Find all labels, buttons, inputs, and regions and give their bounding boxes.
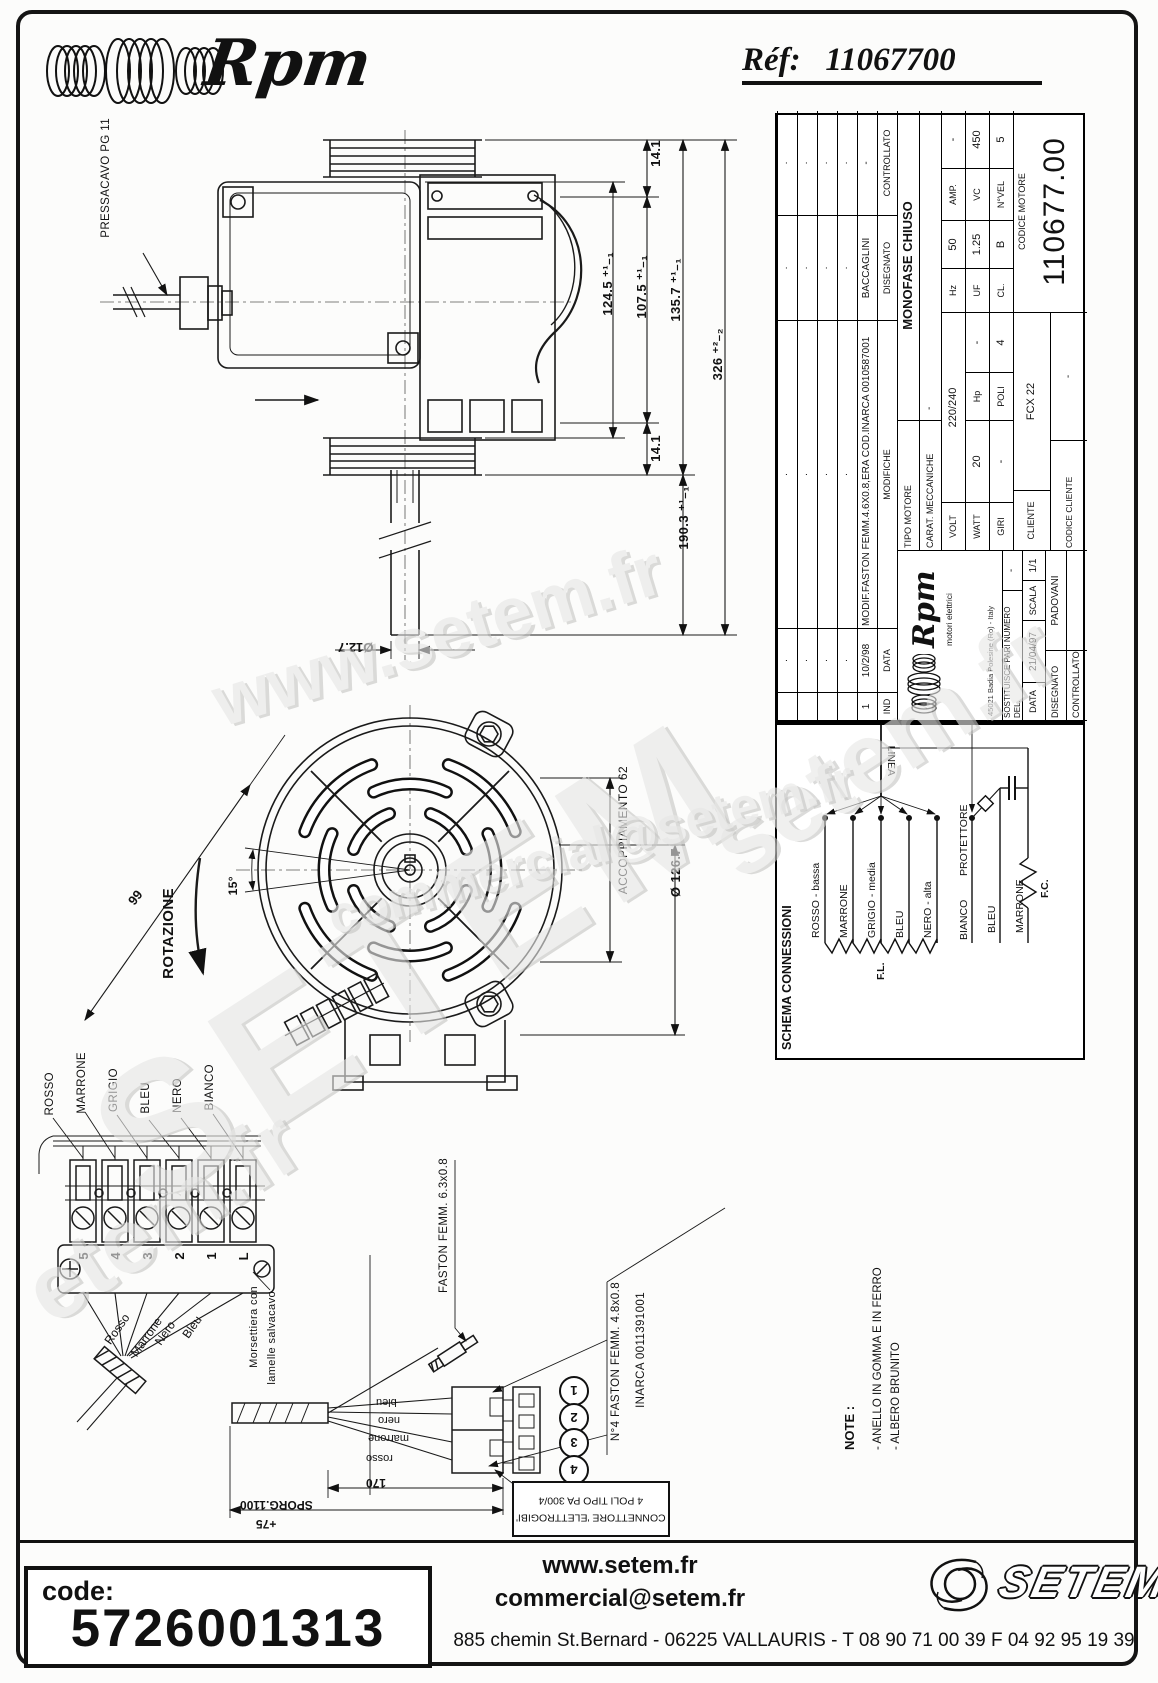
pin-1-text: 1 (570, 1384, 577, 1399)
poli-label: POLI (989, 373, 1013, 421)
tb-controllato-value (1066, 551, 1087, 651)
dim-sporgenza: SPORG.1100 (240, 1498, 313, 1512)
tb-controllato-label: CONTROLLATO (1066, 651, 1087, 721)
rev-cell: · (837, 629, 857, 693)
volt-value: 220/240 (941, 313, 965, 503)
faston4-code: INARCA 0011391001 (635, 1292, 647, 1408)
conn-wire-bleu: bleu (376, 1396, 397, 1408)
terminal-number-1: 1 (204, 1252, 219, 1260)
wire-label-rosso: ROSSO (44, 1072, 56, 1116)
codice-motore-cell: CODICE MOTORE 110677.00 (1013, 111, 1087, 313)
carat-value: - (919, 111, 941, 421)
motor-side-view-drawing (85, 105, 765, 680)
rev-ind-value: 1 (857, 693, 877, 721)
rev-cell: · (817, 216, 837, 321)
rev-modifiche-value: MODIF.FASTON FEMM.4.6X0.8,ERA COD.INARCA… (857, 321, 877, 629)
terminal-number-4: 4 (108, 1252, 123, 1260)
codice-motore-label: CODICE MOTORE (1017, 113, 1028, 310)
dim-326: 326 ⁺²₋₂ (710, 328, 725, 380)
rev-cell: · (817, 111, 837, 216)
tb-scala-label: SCALA (1022, 581, 1045, 621)
giri-label: GIRI (989, 503, 1013, 551)
watt-value: 20 (965, 421, 989, 503)
footer-email: commercial@setem.fr (460, 1585, 780, 1613)
conn-wire-nero: nero (378, 1414, 400, 1426)
terminal-number-5: 5 (76, 1252, 91, 1260)
terminal-connector-drawing (25, 1040, 785, 1540)
rev-cell: · (797, 111, 817, 216)
rev-col-ind: IND (877, 693, 897, 721)
poli-value: 4 (989, 313, 1013, 373)
tb-tagline: motori elettrici (944, 593, 955, 646)
footer-web: www.setem.fr (460, 1552, 780, 1580)
pin-4-text: 4 (570, 1463, 577, 1478)
company-logo-cell: Rpm motori elettrici 45021 Badia Polesin… (897, 551, 1002, 721)
wire-label-bianco: BIANCO (204, 1064, 216, 1111)
rev-cell: · (797, 321, 817, 629)
wire-label-grigio: GRIGIO (108, 1068, 120, 1112)
rev-cell: · (837, 216, 857, 321)
connettore-box-text: CONNETTORE 'ELETTROGIBI' 4 POLI TIPO PA … (516, 1492, 666, 1526)
dim-107-5: 107.5 ⁺¹₋₁ (634, 255, 649, 319)
schema-diagram (777, 725, 1083, 1058)
rev-col-controllato: CONTROLLATO (877, 111, 897, 216)
hz-value: 50 (941, 221, 965, 269)
pin-number-1: 1 (559, 1376, 589, 1406)
angle-15-label: 15° (226, 876, 240, 895)
rev-cell: · (797, 629, 817, 693)
footer-divider (20, 1540, 1134, 1543)
tb-brand: Rpm (906, 570, 944, 648)
vc-label: VC (965, 169, 989, 221)
amp-value: - (941, 111, 965, 169)
hz-label: Hz (941, 269, 965, 313)
rev-col-modifiche: MODIFICHE (877, 321, 897, 629)
rev-col-disegnato: DISEGNATO (877, 216, 897, 321)
reference-number: Réf: 11067700 (742, 42, 1042, 85)
rev-cell: · (777, 111, 797, 216)
setem-logo-text: SETEM (995, 1558, 1158, 1608)
rev-cell (817, 693, 837, 721)
rev-date-value: 10/2/98 (857, 629, 877, 693)
dim-135-7: 135.7 ⁺¹₋₁ (668, 258, 683, 322)
pin-2-text: 2 (570, 1411, 577, 1426)
pressacavo-label: PRESSACAVO PG 11 (100, 118, 112, 238)
rpm-brand-text: Rpm (200, 26, 376, 101)
cliente-label: CLIENTE (1013, 491, 1050, 551)
pin-3-text: 3 (570, 1436, 577, 1451)
conn-wire-rosso: rosso (366, 1452, 393, 1464)
hp-value: - (965, 313, 989, 373)
morsettiera-caption-2: lamelle salvacavo (266, 1291, 278, 1385)
rev-cell: · (777, 216, 797, 321)
watt-label: WATT (965, 503, 989, 551)
tb-coils-icon (903, 654, 945, 716)
pin-number-3: 3 (559, 1428, 589, 1458)
uf-value: 1.25 (965, 221, 989, 269)
dim-124-5: 124.5 ⁺¹₋₁ (600, 252, 615, 316)
rev-cell: · (837, 111, 857, 216)
faston4-label: N°4 FASTON FEMM. 4.8x0.8 (610, 1282, 622, 1441)
cliente-value: FCX 22 (1013, 313, 1050, 491)
setem-logo-icon (918, 1544, 998, 1628)
terminal-number-3: 3 (140, 1252, 155, 1260)
tb-address: 45021 Badia Polesine (Ro) - Italy (986, 606, 995, 716)
wire-label-marrone: MARRONE (76, 1052, 88, 1114)
dim-75: +75 (256, 1517, 276, 1531)
dim-14-1-top: 14.1 (648, 140, 663, 167)
note-item-1: - ANELLO IN GOMMA E IN FERRO (869, 1225, 887, 1450)
note-block: NOTE : - ANELLO IN GOMMA E IN FERRO - AL… (840, 1225, 940, 1450)
vc-value: 450 (965, 111, 989, 169)
giri-value: - (989, 421, 1013, 503)
connettore-elettrogibi-box: CONNETTORE 'ELETTROGIBI' 4 POLI TIPO PA … (512, 1481, 670, 1537)
schema-connessioni-block: SCHEMA CONNESSIONI (775, 723, 1085, 1060)
terminal-number-L: L (236, 1252, 251, 1260)
rev-cell: · (817, 321, 837, 629)
tb-data-label: DATA (1022, 683, 1045, 721)
cl-label: CL. (989, 269, 1013, 313)
sostituisce-label: SOSTITUISCE PARI NUMERO DEL. (1002, 591, 1022, 721)
volt-label: VOLT (941, 503, 965, 551)
dim-shaft-diameter: Ø12.7 (338, 640, 373, 655)
dim-14-1-bottom: 14.1 (648, 435, 663, 462)
connettore-box-line2: 4 POLI TIPO PA 300/4 (516, 1492, 666, 1509)
ref-label: Réf: (742, 42, 801, 78)
uf-label: UF (965, 269, 989, 313)
codice-cliente-value: - (1050, 313, 1087, 441)
rotazione-label: ROTAZIONE (160, 888, 177, 979)
tb-scala-value: 1/1 (1022, 551, 1045, 581)
codice-cliente-label: CODICE CLIENTE (1050, 441, 1087, 551)
tb-disegnato-label: DISEGNATO (1045, 651, 1066, 721)
tb-disegnato-value: PADOVANI (1045, 551, 1066, 651)
note-item-2: - ALBERO BRUNITO (887, 1225, 905, 1450)
code-box: code: 5726001313 (24, 1566, 432, 1668)
dim-126-7: Ø 126.7 (668, 848, 683, 897)
title-block: · · · · · · · · · · · · · · · · 1 10/2/9… (775, 113, 1085, 723)
codice-motore-value: 110677.00 (1036, 113, 1074, 310)
code-value: 5726001313 (28, 1598, 428, 1659)
connettore-box-line1: CONNETTORE 'ELETTROGIBI' (516, 1509, 666, 1526)
sostituisce-value: - (1002, 551, 1022, 591)
dim-170: 170 (366, 1476, 386, 1490)
tb-data-value: 21/04/97 (1022, 621, 1045, 683)
rev-cell: · (777, 321, 797, 629)
hp-label: Hp (965, 373, 989, 421)
rev-disegnato-value: BACCAGLINI (857, 216, 877, 321)
nvel-value: 5 (989, 111, 1013, 169)
terminal-number-2: 2 (172, 1252, 187, 1260)
rev-controllato-value: - (857, 111, 877, 216)
carat-label: CARAT. MECCANICHE (919, 421, 941, 551)
footer-address: 885 chemin St.Bernard - 06225 VALLAURIS … (450, 1630, 1138, 1652)
dim-190-3: 190.3 ⁺¹₋₁ (676, 486, 691, 550)
rev-cell: · (837, 321, 857, 629)
wire-label-bleu: BLEU (140, 1082, 152, 1114)
amp-label: AMP. (941, 169, 965, 221)
note-title: NOTE : (840, 1225, 861, 1450)
rev-col-data: DATA (877, 629, 897, 693)
tipo-motore-label: TIPO MOTORE (897, 421, 919, 551)
morsettiera-caption-1: Morsettiera con (248, 1286, 260, 1368)
faston-label: FASTON FEMM. 6.3x0.8 (438, 1158, 450, 1293)
nvel-label: N°VEL (989, 169, 1013, 221)
accoppiamento-label: ACCOPPIAMENTO 62 (616, 766, 630, 894)
rev-cell: · (777, 629, 797, 693)
rev-cell (777, 693, 797, 721)
conn-wire-marrone: marrone (368, 1432, 409, 1444)
rev-cell: · (817, 629, 837, 693)
rev-cell (837, 693, 857, 721)
rev-cell (797, 693, 817, 721)
ref-value: 11067700 (825, 42, 955, 78)
cl-value: B (989, 221, 1013, 269)
tipo-motore-value: MONOFASE CHIUSO (897, 111, 919, 421)
rev-cell: · (797, 216, 817, 321)
drawing-sheet: Rpm Réf: 11067700 www.setem.fr SETEM set… (0, 0, 1158, 1683)
wire-label-nero: NERO (172, 1078, 184, 1113)
